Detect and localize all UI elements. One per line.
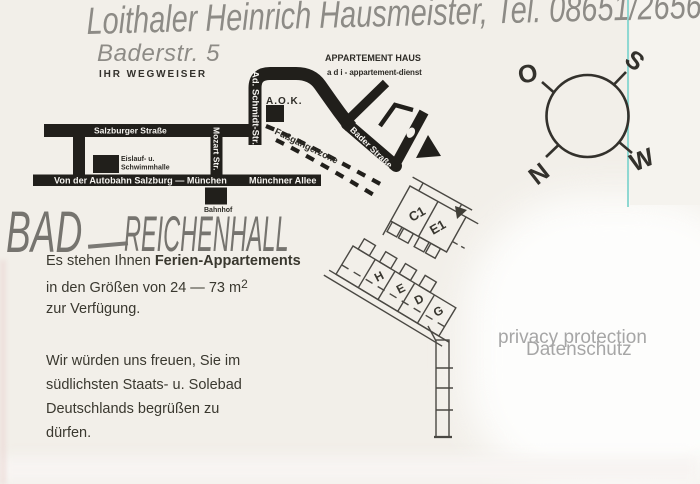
- svg-text:Mozart Str.: Mozart Str.: [212, 127, 222, 170]
- svg-text:Schwimmhalle: Schwimmhalle: [121, 165, 170, 172]
- svg-text:S: S: [619, 45, 649, 77]
- svg-text:Ad. Schmidt-Str.: Ad. Schmidt-Str.: [250, 71, 261, 145]
- svg-text:E1: E1: [427, 217, 448, 238]
- svg-text:Bader Straße: Bader Straße: [348, 125, 394, 170]
- svg-text:G: G: [431, 303, 446, 320]
- svg-text:Bahnhof: Bahnhof: [204, 207, 233, 214]
- svg-text:N: N: [523, 158, 554, 191]
- svg-text:Salzburger Straße: Salzburger Straße: [94, 126, 167, 136]
- svg-text:Fußgängerzone: Fußgängerzone: [273, 126, 340, 165]
- svg-text:A.O.K.: A.O.K.: [266, 96, 303, 107]
- svg-text:Eislauf- u.: Eislauf- u.: [121, 156, 155, 163]
- svg-text:Münchner Allee: Münchner Allee: [249, 176, 316, 186]
- svg-text:Von der Autobahn Salzburg — Mü: Von der Autobahn Salzburg — München: [54, 176, 227, 186]
- svg-text:E: E: [394, 281, 407, 297]
- svg-text:O: O: [515, 58, 540, 89]
- svg-text:D: D: [412, 291, 426, 308]
- svg-text:H: H: [372, 268, 386, 284]
- svg-text:C1: C1: [406, 203, 428, 224]
- svg-text:W: W: [626, 143, 659, 178]
